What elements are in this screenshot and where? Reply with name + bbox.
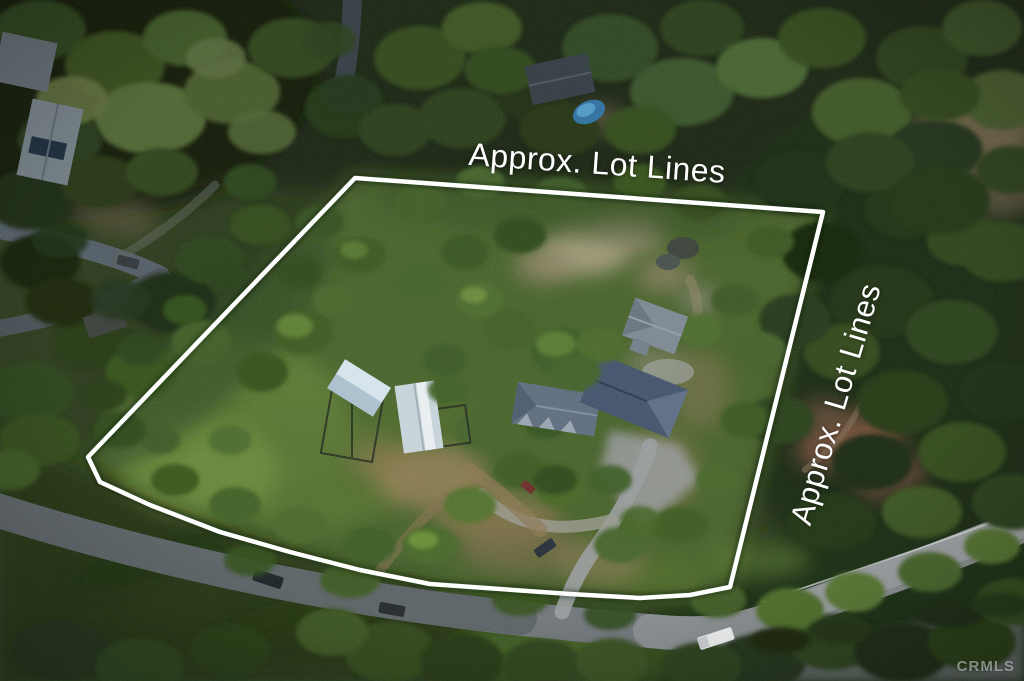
crmls-watermark: CRMLS	[957, 658, 1015, 675]
aerial-scene	[0, 0, 1024, 681]
vignette	[0, 0, 1024, 681]
aerial-listing-photo: Approx. Lot Lines Approx. Lot Lines CRML…	[0, 0, 1024, 681]
